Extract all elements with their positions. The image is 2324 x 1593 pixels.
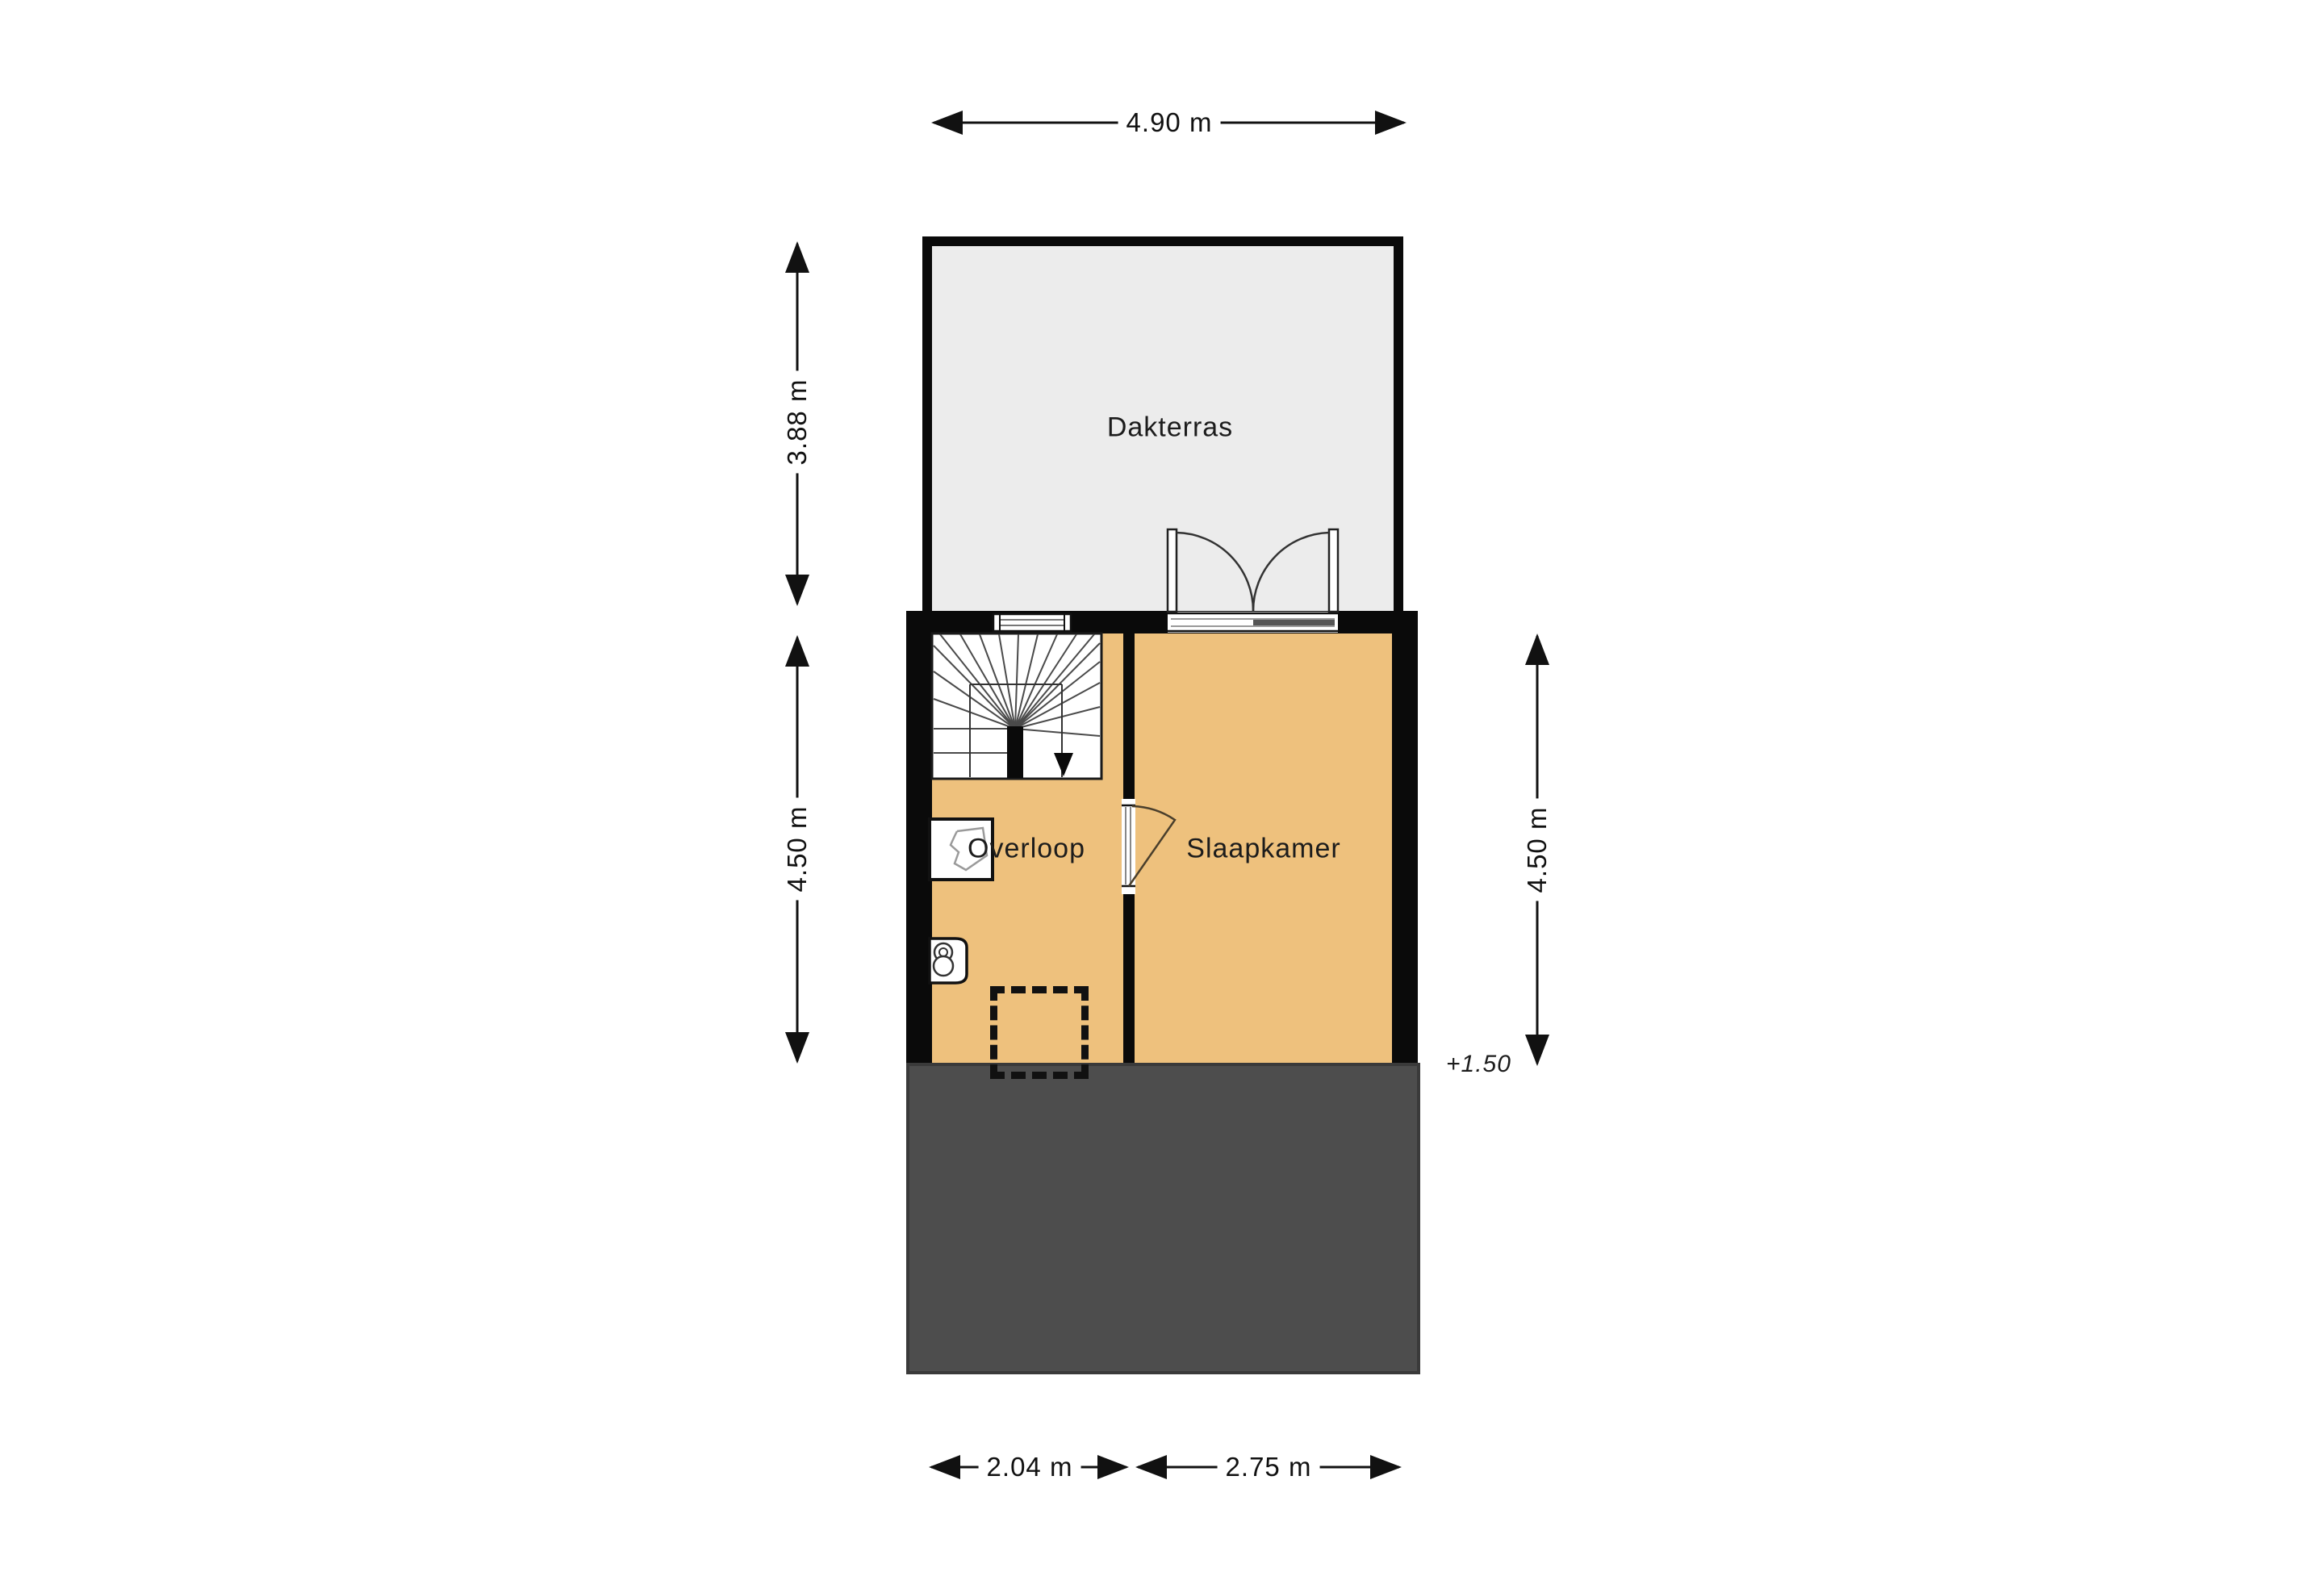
stairs-icon: [932, 633, 1101, 779]
room-label-slaapkamer: Slaapkamer: [1186, 834, 1340, 865]
dimension-top: 4.90 m: [1118, 107, 1221, 138]
floor-plan-canvas: Dakterras Overloop Slaapkamer 4.90 m 3.8…: [0, 0, 2324, 1593]
dimension-left-upper: 3.88 m: [782, 371, 813, 474]
interior-door-icon: [1122, 799, 1175, 894]
dimension-left-lower: 4.50 m: [782, 798, 813, 901]
plan-linework: [0, 0, 2324, 1593]
terrace-doors-icon: [1168, 529, 1338, 633]
room-label-overloop: Overloop: [968, 834, 1085, 865]
dimension-bottom-right: 2.75 m: [1218, 1452, 1320, 1482]
dimension-lines: [797, 123, 1537, 1467]
toilet-icon: [930, 939, 967, 983]
level-annotation: +1.50: [1446, 1051, 1511, 1078]
window-icon: [993, 614, 1071, 631]
dimension-right: 4.50 m: [1522, 799, 1553, 901]
dimension-bottom-left: 2.04 m: [979, 1452, 1081, 1482]
room-label-dakterras: Dakterras: [1107, 412, 1233, 444]
